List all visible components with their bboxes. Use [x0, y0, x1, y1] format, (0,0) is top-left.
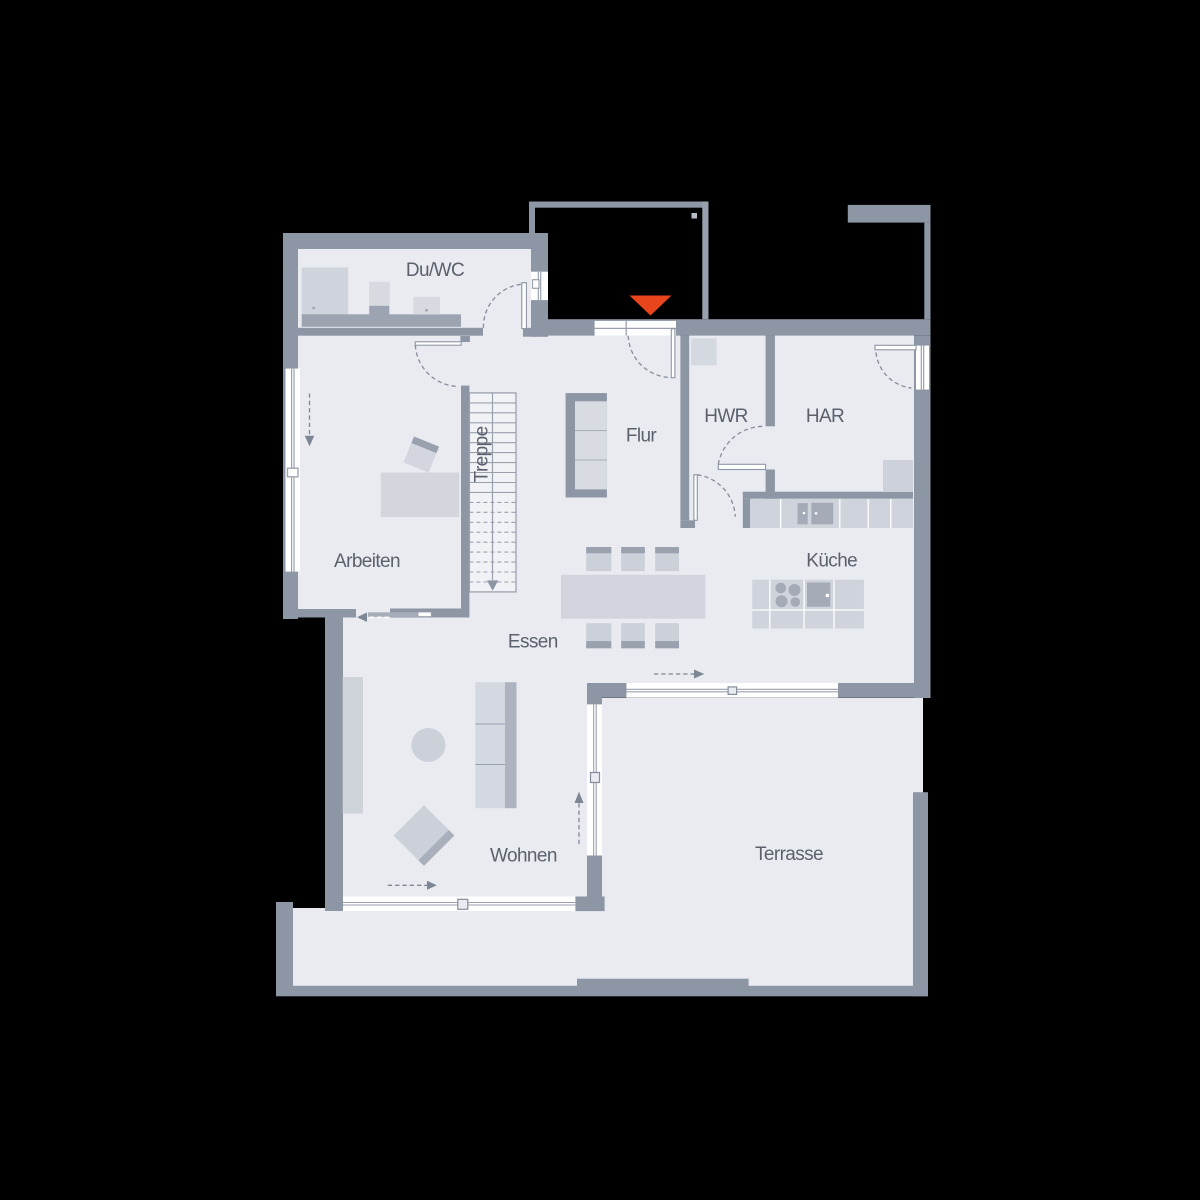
svg-text:Flur: Flur — [626, 426, 658, 447]
svg-text:Du/WC: Du/WC — [406, 260, 464, 281]
svg-text:Terrasse: Terrasse — [755, 844, 823, 865]
svg-text:Arbeiten: Arbeiten — [334, 551, 400, 572]
svg-text:Treppe: Treppe — [472, 426, 493, 482]
svg-text:Küche: Küche — [806, 551, 857, 572]
svg-text:HAR: HAR — [806, 406, 844, 427]
svg-text:Essen: Essen — [508, 632, 558, 653]
svg-text:Wohnen: Wohnen — [490, 846, 557, 867]
svg-text:HWR: HWR — [704, 406, 748, 427]
